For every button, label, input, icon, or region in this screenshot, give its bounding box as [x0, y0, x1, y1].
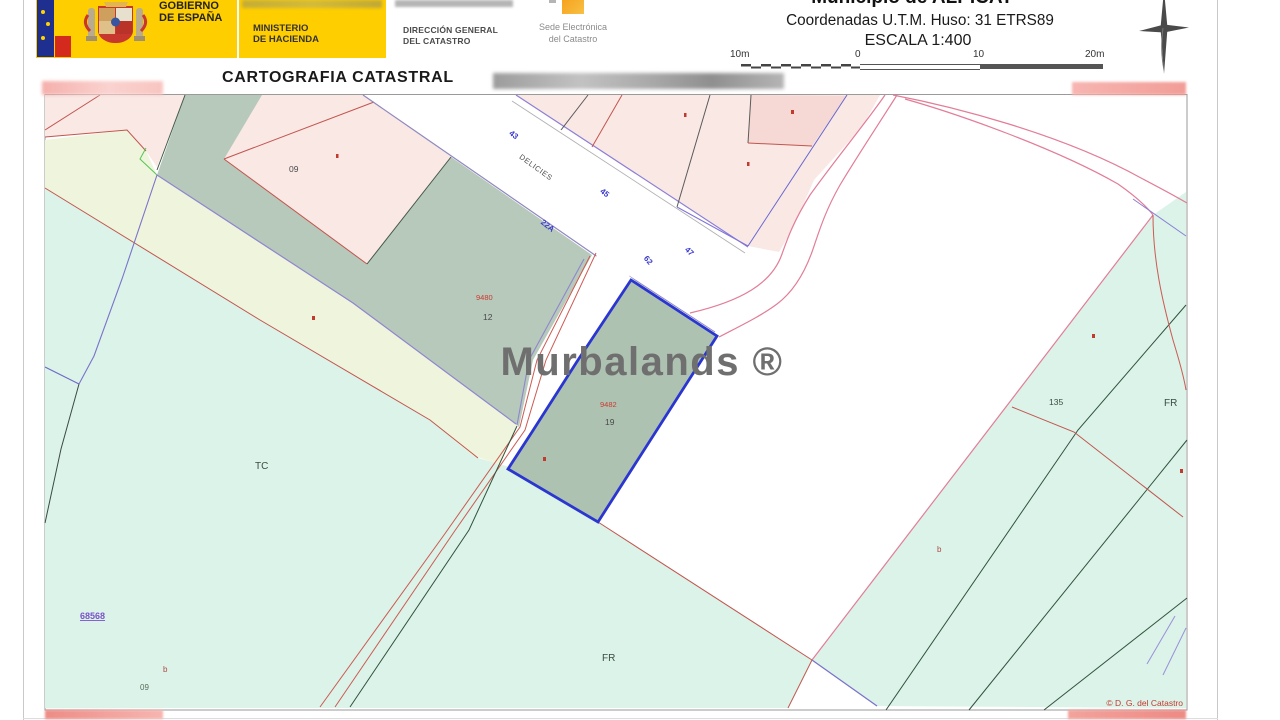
svg-text:135: 135	[1049, 397, 1063, 407]
svg-text:b: b	[163, 665, 168, 674]
svg-text:FR: FR	[602, 653, 615, 664]
svg-text:Murbalands ®: Murbalands ®	[500, 340, 783, 384]
svg-text:9482: 9482	[600, 400, 617, 409]
svg-text:TC: TC	[255, 461, 268, 472]
svg-text:FR: FR	[1164, 398, 1177, 409]
svg-text:12: 12	[483, 312, 493, 322]
svg-text:68568: 68568	[80, 611, 105, 621]
svg-text:19: 19	[605, 417, 615, 427]
svg-text:09: 09	[289, 164, 299, 174]
svg-text:09: 09	[140, 683, 149, 692]
svg-text:9480: 9480	[476, 293, 493, 302]
svg-text:b: b	[937, 545, 942, 554]
svg-text:© D. G. del Catastro: © D. G. del Catastro	[1106, 698, 1183, 708]
